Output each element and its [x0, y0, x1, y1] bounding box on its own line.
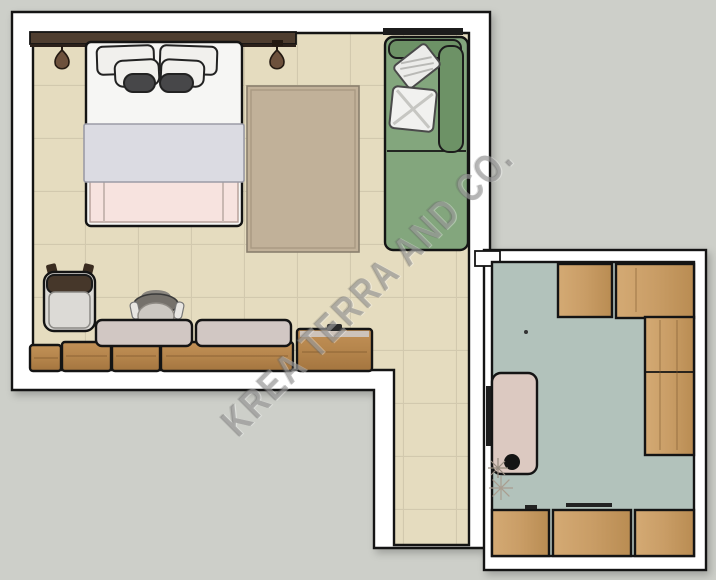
throw-blanket-pink	[90, 176, 238, 222]
cabinet-handle	[327, 324, 342, 331]
accent-pillow-right	[160, 74, 193, 92]
wardrobe-top-large	[616, 264, 694, 318]
wardrobe-column	[645, 317, 694, 455]
cabinet-handle-mark-2	[566, 503, 612, 507]
sofa-pillow-square	[389, 86, 437, 132]
sofa-backrest	[439, 46, 463, 152]
base-cabinet-2	[553, 510, 631, 556]
area-rug	[247, 86, 359, 252]
floor-plan: KREA TERRA AND CO.	[0, 0, 716, 580]
wardrobe-top-small	[558, 264, 612, 317]
lounge-chair	[44, 263, 95, 331]
chair-backrest	[47, 275, 92, 293]
double-bed	[84, 42, 244, 226]
base-cabinet-3	[635, 510, 694, 556]
chair-seat	[49, 292, 90, 328]
accent-pillow-left	[124, 74, 155, 92]
side-cabinet	[297, 324, 372, 371]
floor-plan-canvas	[0, 0, 716, 580]
base-cabinet-1	[492, 510, 549, 556]
floor-dot	[524, 330, 528, 334]
cabinet-handle-mark-1	[525, 505, 537, 509]
sofa	[383, 28, 468, 250]
blanket-gray	[84, 124, 244, 182]
wall-rail	[383, 28, 463, 35]
